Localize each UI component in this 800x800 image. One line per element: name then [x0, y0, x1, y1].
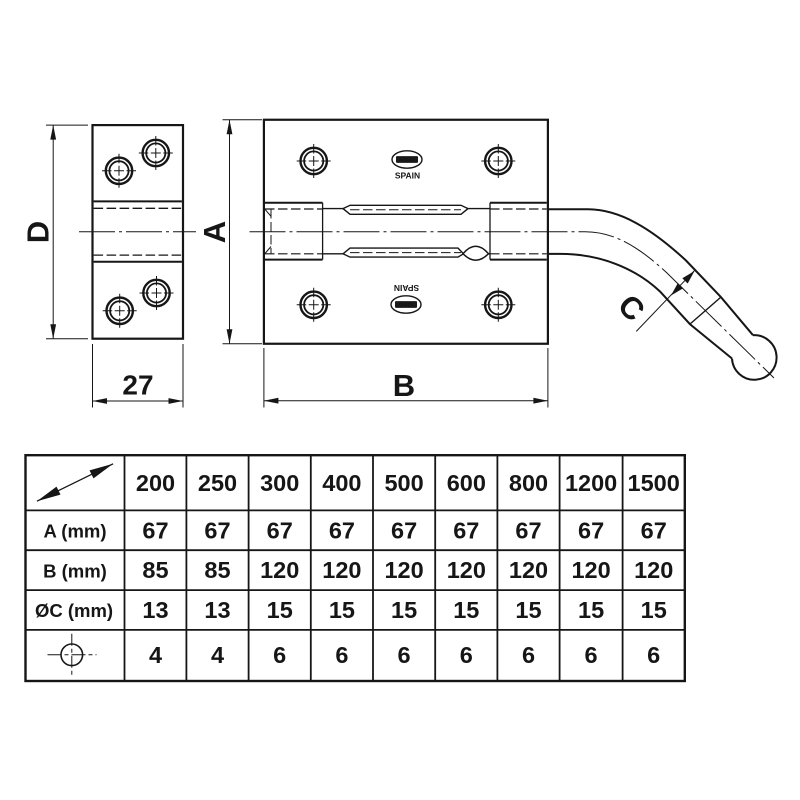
svg-text:15: 15 — [391, 597, 417, 623]
svg-text:67: 67 — [267, 517, 293, 543]
svg-text:6: 6 — [460, 642, 473, 668]
svg-text:120: 120 — [322, 557, 361, 583]
svg-text:67: 67 — [204, 517, 230, 543]
svg-text:85: 85 — [204, 557, 230, 583]
svg-text:15: 15 — [641, 597, 667, 623]
svg-text:15: 15 — [578, 597, 604, 623]
svg-text:ØC (mm): ØC (mm) — [35, 600, 113, 621]
svg-text:6: 6 — [585, 642, 598, 668]
svg-text:67: 67 — [391, 517, 417, 543]
svg-text:15: 15 — [329, 597, 355, 623]
svg-text:400: 400 — [322, 470, 361, 496]
svg-text:120: 120 — [571, 557, 610, 583]
svg-text:SPAIN: SPAIN — [394, 283, 419, 293]
svg-text:67: 67 — [329, 517, 355, 543]
svg-text:200: 200 — [136, 470, 175, 496]
svg-text:4: 4 — [149, 642, 162, 668]
svg-text:500: 500 — [384, 470, 423, 496]
svg-text:6: 6 — [647, 642, 660, 668]
svg-text:800: 800 — [509, 470, 548, 496]
svg-text:1200: 1200 — [565, 470, 617, 496]
svg-text:4: 4 — [211, 642, 224, 668]
svg-text:67: 67 — [453, 517, 479, 543]
svg-text:120: 120 — [447, 557, 486, 583]
svg-text:B (mm): B (mm) — [43, 560, 107, 581]
svg-text:120: 120 — [260, 557, 299, 583]
svg-text:13: 13 — [204, 597, 230, 623]
svg-text:13: 13 — [142, 597, 168, 623]
svg-text:B: B — [393, 368, 415, 403]
svg-text:6: 6 — [398, 642, 411, 668]
svg-text:67: 67 — [142, 517, 168, 543]
svg-text:D: D — [21, 221, 56, 243]
svg-text:67: 67 — [515, 517, 541, 543]
svg-text:6: 6 — [522, 642, 535, 668]
svg-text:A (mm): A (mm) — [43, 520, 106, 541]
svg-text:SPAIN: SPAIN — [395, 170, 420, 180]
svg-text:27: 27 — [122, 370, 153, 401]
svg-text:A: A — [197, 221, 232, 243]
svg-text:600: 600 — [447, 470, 486, 496]
svg-text:120: 120 — [509, 557, 548, 583]
svg-text:67: 67 — [578, 517, 604, 543]
svg-text:15: 15 — [267, 597, 293, 623]
svg-text:6: 6 — [335, 642, 348, 668]
svg-text:300: 300 — [260, 470, 299, 496]
svg-text:250: 250 — [198, 470, 237, 496]
svg-text:120: 120 — [384, 557, 423, 583]
svg-text:15: 15 — [453, 597, 479, 623]
svg-text:15: 15 — [515, 597, 541, 623]
svg-text:120: 120 — [634, 557, 673, 583]
svg-text:85: 85 — [142, 557, 168, 583]
svg-text:1500: 1500 — [628, 470, 680, 496]
svg-text:6: 6 — [273, 642, 286, 668]
svg-text:67: 67 — [641, 517, 667, 543]
